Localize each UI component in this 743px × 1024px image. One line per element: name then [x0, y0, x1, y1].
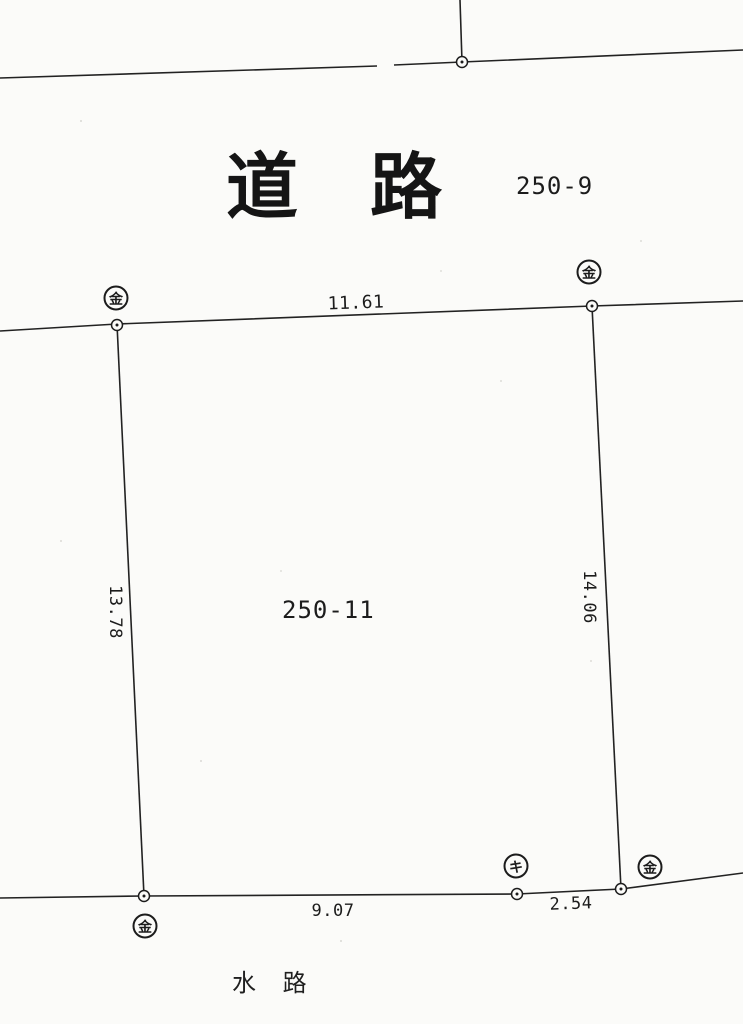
parcel-number-250-9: 250-9 — [516, 172, 593, 200]
boundary-point-dot — [143, 895, 146, 898]
road-edge-line-left — [0, 66, 377, 78]
parcel-number-250-11: 250-11 — [282, 596, 375, 624]
boundary-point-dot — [461, 61, 464, 64]
waterway-area-label: 水 路 — [232, 963, 317, 998]
metal-survey-marker-bottom-left: 金 — [133, 914, 158, 939]
measurement-top-edge: 11.61 — [327, 292, 384, 315]
measurement-bottom-edge: 9.07 — [312, 901, 355, 921]
boundary-point-dot — [116, 324, 119, 327]
cadastral-map: 道 路 250-9 250-11 水 路 11.61 13.78 14.06 9… — [0, 0, 743, 1024]
metal-survey-marker-top-left: 金 — [104, 286, 129, 311]
metal-marker-glyph: 金 — [643, 861, 657, 875]
boundary-lines — [0, 0, 743, 898]
metal-marker-glyph: 金 — [582, 266, 596, 280]
metal-marker-glyph: 金 — [138, 920, 152, 934]
road-edge-line-right — [394, 50, 743, 65]
road-area-label: 道 路 — [226, 152, 442, 224]
road-junction-line — [460, 0, 462, 62]
parcel-bottom-boundary — [0, 873, 743, 898]
boundary-point-dot — [620, 888, 623, 891]
ki-survey-marker-bottom-middle: キ — [504, 854, 529, 879]
measurement-left-edge: 13.78 — [105, 585, 125, 639]
boundary-point-dot — [516, 893, 519, 896]
ki-marker-glyph: キ — [509, 860, 523, 874]
metal-survey-marker-bottom-right: 金 — [638, 855, 663, 880]
measurement-bottom-right-edge: 2.54 — [549, 893, 593, 914]
metal-survey-marker-top-right: 金 — [577, 260, 602, 285]
boundary-point-dot — [591, 305, 594, 308]
metal-marker-glyph: 金 — [109, 292, 123, 306]
measurement-right-edge: 14.06 — [579, 570, 599, 624]
